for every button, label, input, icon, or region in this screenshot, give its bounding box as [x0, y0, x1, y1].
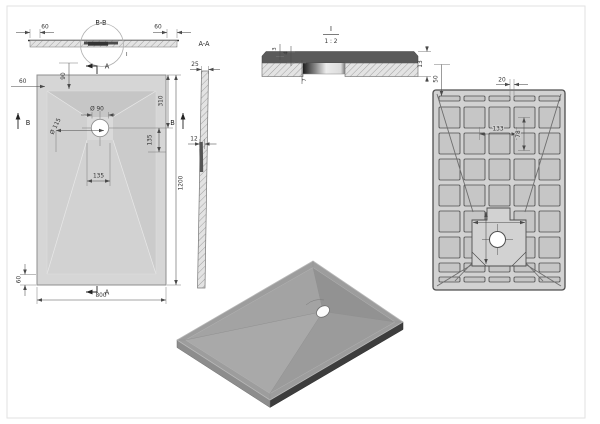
- bottom-view: 50 20 133 78: [433, 65, 565, 291]
- rib-cell: [464, 159, 485, 180]
- dim-label-bb-rim-left: 60: [41, 25, 49, 31]
- rib-cell: [539, 237, 560, 258]
- detail-view: I 1 : 2 3 4 7 13: [262, 25, 431, 84]
- rib-cell: [439, 211, 460, 232]
- cut-label-a-bottom: A: [105, 289, 110, 297]
- dim-label-rib-width: 78: [516, 130, 522, 138]
- dim-label-drain-offset: 135: [93, 174, 104, 180]
- rib-cell: [464, 133, 485, 154]
- dim-label-total-height: 13: [418, 60, 424, 68]
- rib-cell: [489, 159, 510, 180]
- detail-hatch-left: [262, 63, 303, 77]
- rib-cell: [514, 96, 535, 101]
- cut-label-a-top: A: [105, 63, 110, 71]
- detail-drain-recess: [303, 63, 345, 74]
- rib-cell: [439, 237, 460, 258]
- dim-label-rib-gap: 20: [498, 78, 506, 84]
- dim-label-mid-thickness: 12: [190, 137, 198, 143]
- rib-cell: [439, 263, 460, 272]
- detail-hatch-right: [345, 63, 418, 77]
- dim-label-rim-bottom: 60: [17, 276, 23, 284]
- rib-cell: [539, 185, 560, 206]
- rib-cell: [514, 277, 535, 282]
- rib-cell: [464, 96, 485, 101]
- rib-cell: [439, 185, 460, 206]
- dim-label-drain-hole: Ø 90: [90, 106, 104, 113]
- rib-cell: [539, 107, 560, 128]
- isometric-view: [177, 261, 403, 408]
- dim-label-bottom-rim: 50: [434, 75, 440, 83]
- dim-label-height: 1200: [179, 175, 185, 190]
- detail-callout-label: I: [126, 52, 128, 58]
- section-bb-title: B-B: [95, 19, 107, 27]
- cut-label-b-left: B: [26, 119, 31, 127]
- dim-label-recess-below-center: 135: [148, 134, 154, 145]
- dim-label-recess-depth: 7: [302, 78, 308, 81]
- rib-cell: [514, 159, 535, 180]
- rib-cell: [539, 211, 560, 232]
- detail-title: I: [330, 25, 332, 33]
- rib-cell: [464, 277, 485, 282]
- dim-label-bb-rim-right: 60: [154, 25, 162, 31]
- dim-label-rim-top: 90: [61, 72, 67, 80]
- dim-label-drain-from-top: 310: [159, 95, 165, 106]
- rib-cell: [489, 107, 510, 128]
- rib-cell: [464, 185, 485, 206]
- bottom-drain-hole: [490, 232, 506, 248]
- rib-cell: [539, 96, 560, 101]
- rib-cell: [489, 185, 510, 206]
- rib-cell: [489, 96, 510, 101]
- dim-label-rib-pitch: 133: [492, 127, 503, 133]
- rib-cell: [489, 277, 510, 282]
- front-view: 60 90 Ø 90 Ø 115 135 310 135 60: [11, 63, 185, 305]
- rib-cell: [439, 159, 460, 180]
- aa-hatched-section: [198, 71, 209, 288]
- bb-drain-recess-dark: [88, 42, 108, 46]
- section-view-aa: A-A 25 12: [188, 40, 220, 288]
- drain-hole: [91, 119, 108, 136]
- rib-cell: [539, 159, 560, 180]
- drawing-sheet: B-B I 60 60 60 90: [0, 0, 600, 424]
- detail-scale: 1 : 2: [324, 39, 337, 45]
- dim-label-rim-left: 60: [19, 79, 27, 85]
- rib-cell: [539, 263, 560, 272]
- rib-cell: [464, 107, 485, 128]
- rib-cell: [489, 133, 510, 154]
- rib-cell: [439, 96, 460, 101]
- dim-label-top-layer: 3: [272, 47, 278, 50]
- section-view-bb: B-B I 60 60: [16, 19, 191, 67]
- technical-drawing-canvas: B-B I 60 60 60 90: [0, 0, 600, 424]
- section-aa-title: A-A: [198, 40, 210, 48]
- dim-label-edge-thickness: 25: [191, 62, 199, 68]
- rib-cell: [539, 133, 560, 154]
- cut-label-b-right: B: [170, 119, 175, 127]
